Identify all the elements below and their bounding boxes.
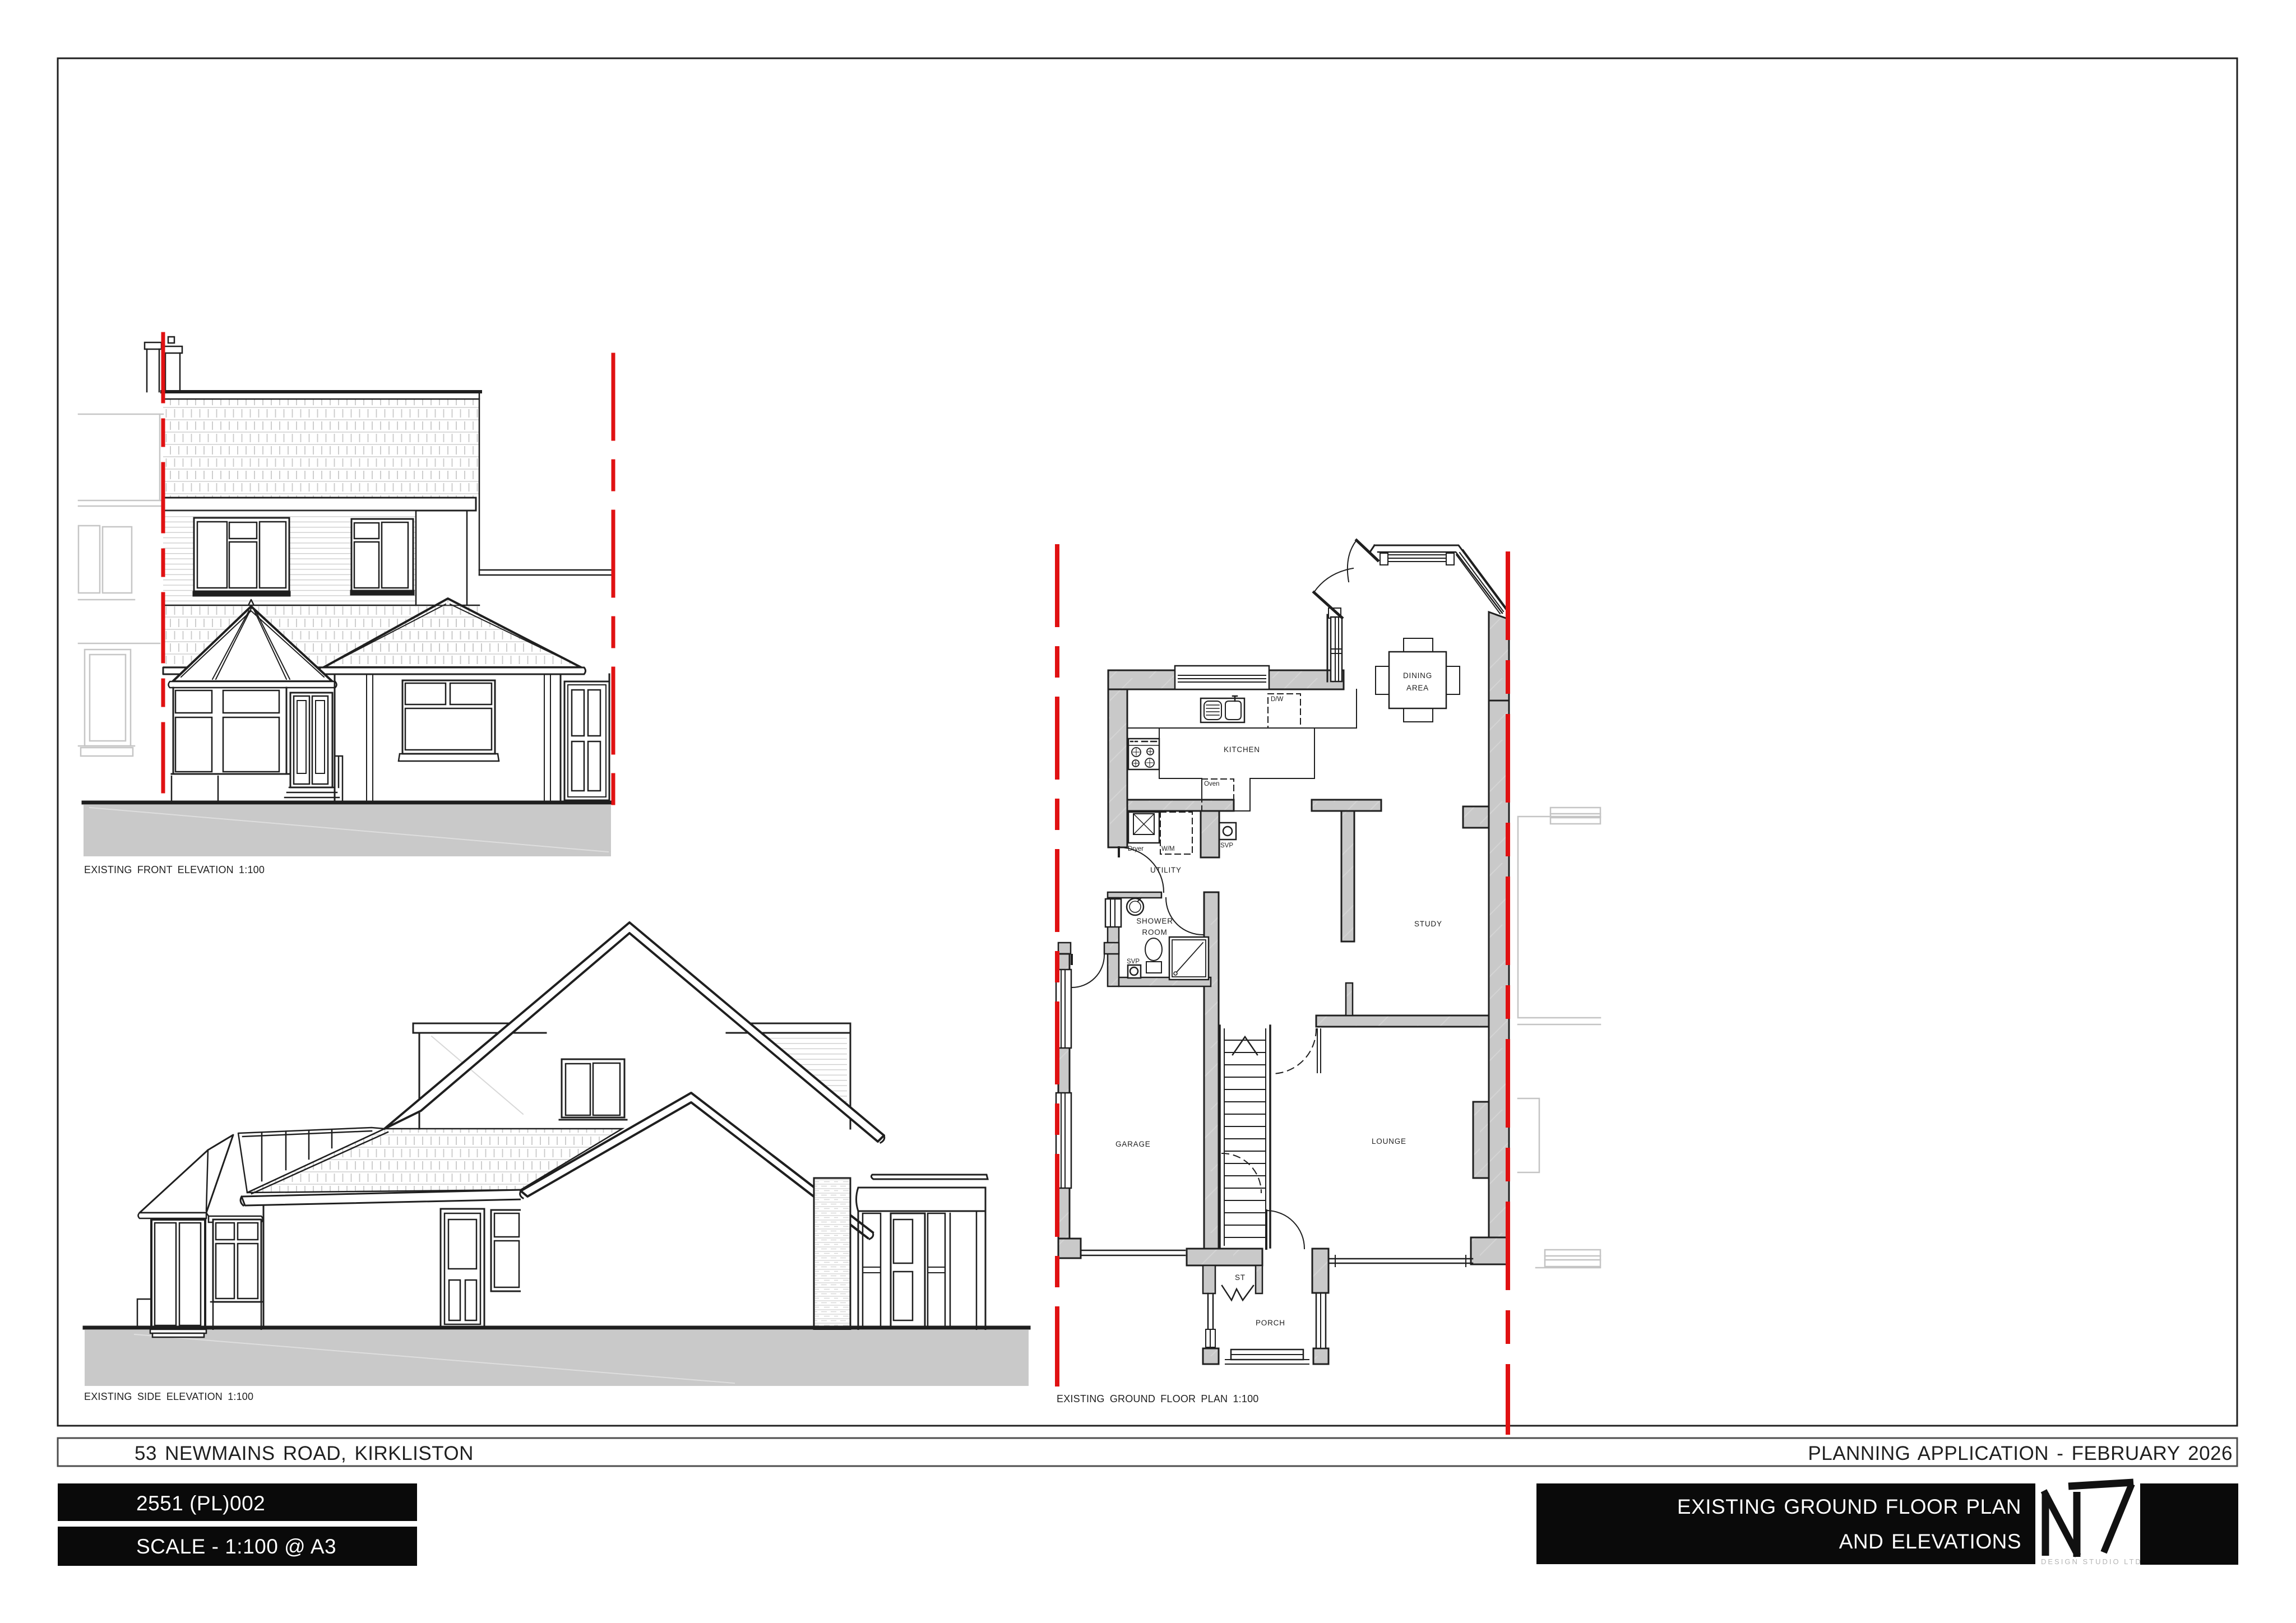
- svg-text:ST: ST: [1235, 1273, 1246, 1282]
- svg-text:LOUNGE: LOUNGE: [1372, 1137, 1406, 1146]
- svg-text:EXISTING FRONT ELEVATION 1:100: EXISTING FRONT ELEVATION 1:100: [84, 864, 265, 875]
- svg-text:SCALE - 1:100 @ A3: SCALE - 1:100 @ A3: [136, 1535, 336, 1558]
- svg-text:EXISTING GROUND FLOOR PLAN: EXISTING GROUND FLOOR PLAN: [1677, 1495, 2021, 1518]
- svg-text:AND ELEVATIONS: AND ELEVATIONS: [1839, 1530, 2021, 1553]
- svg-text:UTILITY: UTILITY: [1150, 866, 1182, 874]
- svg-text:SVP: SVP: [1220, 842, 1233, 849]
- svg-text:EXISTING GROUND FLOOR PLAN 1:1: EXISTING GROUND FLOOR PLAN 1:100: [1057, 1393, 1259, 1404]
- svg-text:KITCHEN: KITCHEN: [1224, 745, 1260, 754]
- svg-text:EXISTING SIDE ELEVATION 1:100: EXISTING SIDE ELEVATION 1:100: [84, 1391, 253, 1402]
- svg-text:ROOM: ROOM: [1142, 928, 1167, 936]
- svg-text:GARAGE: GARAGE: [1115, 1140, 1151, 1148]
- svg-text:D/W: D/W: [1271, 696, 1284, 703]
- svg-text:Oven: Oven: [1204, 781, 1220, 787]
- svg-text:W/M: W/M: [1161, 846, 1175, 852]
- svg-text:STUDY: STUDY: [1414, 920, 1442, 928]
- svg-text:SVP: SVP: [1127, 958, 1140, 965]
- svg-text:DESIGN STUDIO LTD: DESIGN STUDIO LTD: [2041, 1557, 2142, 1566]
- svg-text:2551 (PL)002: 2551 (PL)002: [136, 1492, 265, 1515]
- svg-text:53 NEWMAINS ROAD, KIRKLISTON: 53 NEWMAINS ROAD, KIRKLISTON: [135, 1443, 474, 1464]
- svg-text:PLANNING APPLICATION - FEBRUAR: PLANNING APPLICATION - FEBRUARY 2026: [1808, 1443, 2233, 1464]
- svg-text:PORCH: PORCH: [1256, 1319, 1285, 1327]
- svg-text:AREA: AREA: [1406, 684, 1429, 692]
- svg-text:Dryer: Dryer: [1128, 846, 1144, 852]
- svg-text:SHOWER: SHOWER: [1136, 917, 1173, 925]
- svg-text:DINING: DINING: [1403, 671, 1432, 680]
